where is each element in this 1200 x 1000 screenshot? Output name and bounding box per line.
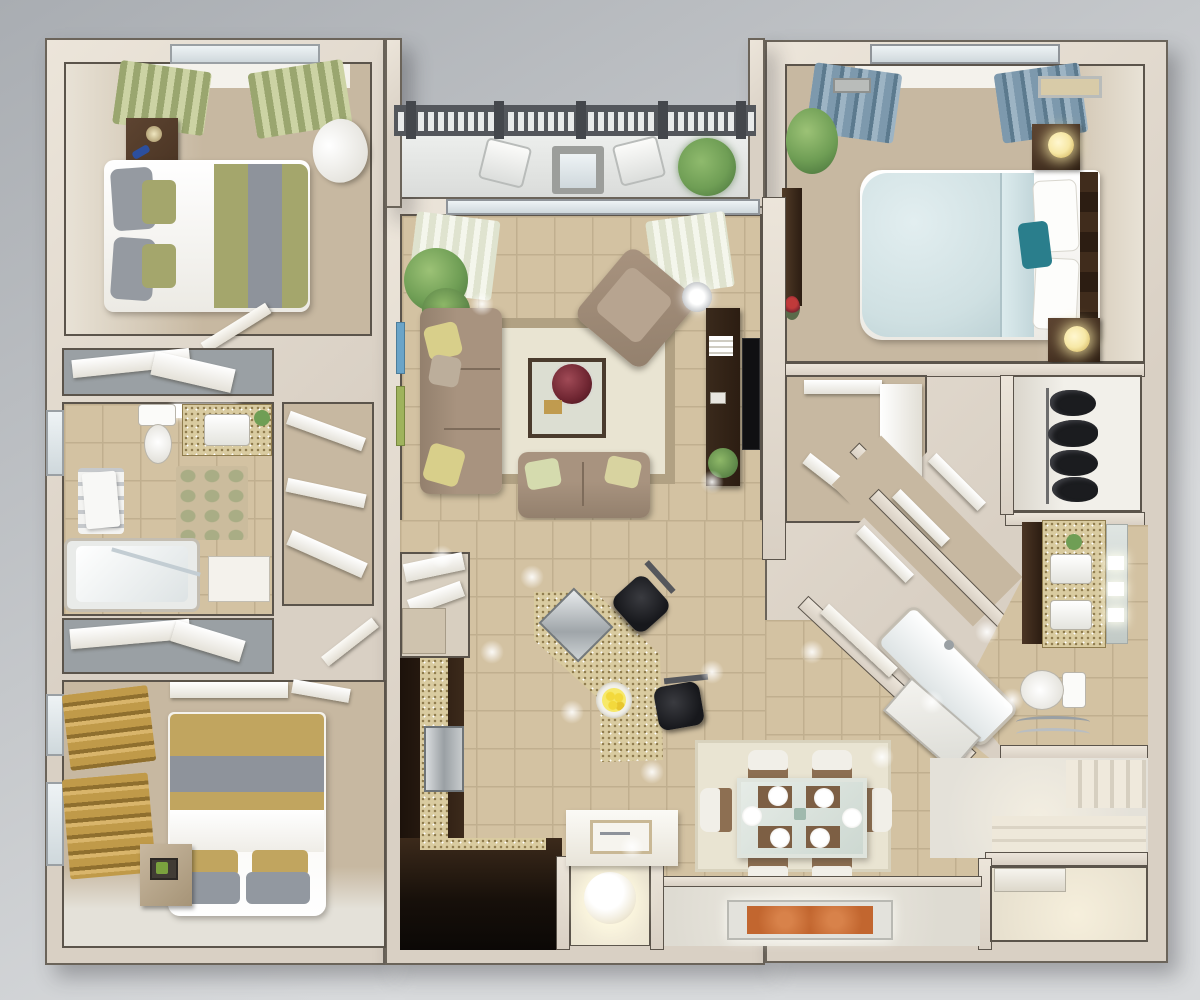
kitchen-counter-bottom-granite — [420, 838, 546, 850]
bath2-towel-rack — [1016, 728, 1090, 740]
pantry-appliance — [402, 608, 446, 654]
dinner-plate — [770, 828, 790, 848]
vanity-light — [1108, 608, 1124, 622]
dinner-plate — [842, 808, 862, 828]
light-sparkle — [700, 660, 724, 684]
closet-rod — [1046, 388, 1049, 504]
balcony-plant — [678, 138, 736, 196]
light-sparkle — [1000, 688, 1024, 712]
bath2-south-wall — [1000, 745, 1148, 759]
master-wall-art — [1038, 76, 1102, 98]
sofa-pillow-taupe — [428, 354, 463, 389]
balcony-table-top — [560, 154, 596, 188]
bath2-tub-faucet — [944, 640, 954, 650]
master-wall-frame — [833, 78, 871, 93]
foyer-paneled-doors — [1066, 760, 1146, 808]
bathroom1-sink — [204, 414, 250, 446]
bathroom1-plant — [254, 410, 270, 426]
dinner-plate — [768, 786, 788, 806]
entry-step-wall — [662, 876, 982, 887]
bath2-toilet-tank — [1062, 672, 1086, 708]
storage-north-wall — [985, 852, 1148, 866]
bedroom3-blanket-gray-band — [170, 756, 324, 792]
floor-plan-scene — [0, 0, 1200, 1000]
light-sparkle — [640, 760, 664, 784]
loveseat-pillow — [524, 457, 562, 490]
entry-rug-orange — [747, 906, 873, 934]
bedroom2-blanket-stripe — [248, 164, 282, 308]
light-sparkle — [700, 470, 724, 494]
vanity-light — [1108, 582, 1124, 596]
wall-art-green — [396, 386, 405, 446]
clothes-closet-west-wall — [1000, 375, 1014, 515]
bedroom3-blinds — [62, 685, 157, 771]
light-sparkle — [920, 690, 944, 714]
bedroom2-pillow-olive — [142, 244, 176, 288]
railing-post — [658, 101, 668, 139]
bathroom1-window — [46, 410, 64, 476]
light-sparkle — [975, 620, 999, 644]
light-sparkle — [470, 292, 494, 316]
nightstand-lamp-glow — [1064, 326, 1090, 352]
light-sparkle — [620, 835, 644, 859]
bath2-plant — [1066, 534, 1082, 550]
balcony-railing — [394, 105, 756, 136]
lamp-nook-wall-right — [650, 856, 664, 950]
railing-post — [406, 101, 416, 139]
built-in-appliance — [424, 726, 464, 792]
table-centerpiece — [794, 808, 806, 820]
bedroom3-shelf — [170, 682, 288, 698]
railing-post — [494, 101, 504, 139]
master-window — [870, 44, 1060, 64]
fruit-lemons — [602, 688, 626, 712]
bath2-sink — [1050, 600, 1092, 630]
hanging-garment — [1048, 420, 1098, 447]
bedroom3-window — [46, 694, 64, 756]
bedroom3-duvet-fold — [170, 810, 324, 852]
bar-stool — [653, 680, 706, 731]
light-sparkle — [480, 640, 504, 664]
console-print-marks — [600, 832, 630, 835]
walkin-shelf — [804, 380, 882, 394]
coffee-table-book — [544, 400, 562, 414]
tv-screen — [742, 338, 760, 450]
hanging-garment — [1050, 390, 1096, 416]
sphere-lamp — [584, 872, 636, 924]
bedroom2-pillow-olive — [142, 180, 176, 224]
dining-chair — [700, 788, 732, 832]
bathroom1-toilet-bowl — [144, 424, 172, 464]
foyer-panel-lines — [992, 816, 1146, 856]
dinner-plate — [814, 788, 834, 808]
bath2-towel-rack — [1016, 716, 1090, 728]
vanity-light — [1108, 556, 1124, 570]
light-sparkle — [430, 545, 454, 569]
bedroom3-blanket-khaki-lower — [170, 792, 324, 810]
bedroom3-window — [46, 782, 64, 866]
wall-art-blue — [396, 322, 405, 374]
dinner-plate — [742, 806, 762, 826]
bathroom1-cabinet — [208, 556, 270, 602]
bedroom2-window — [170, 44, 320, 64]
light-sparkle — [870, 745, 894, 769]
kitchen-counter-bottom — [400, 838, 562, 950]
living-master-wall — [762, 197, 786, 560]
dresser-flowers — [784, 296, 800, 320]
bath2-toilet-bowl — [1020, 670, 1064, 710]
bathroom1-toilet-tank — [138, 404, 176, 426]
living-sofa-cushion-line — [444, 428, 500, 430]
bedroom3-green-decor — [156, 862, 168, 874]
railing-post — [736, 101, 746, 139]
master-plant — [786, 108, 838, 174]
bath2-vanity-cabinet — [1022, 522, 1042, 644]
lamp-nook-wall-left — [556, 856, 570, 950]
hanging-garment — [1050, 450, 1098, 476]
master-headboard — [1080, 172, 1098, 340]
loveseat-cushion-line — [582, 462, 584, 506]
bath2-sink — [1050, 554, 1092, 584]
light-sparkle — [520, 565, 544, 589]
railing-post — [576, 101, 586, 139]
storage-cabinets — [994, 868, 1066, 892]
bathroom1-pebble-mat — [176, 466, 248, 540]
hanging-garment — [1052, 477, 1098, 502]
nightstand-lamp-glow — [1048, 132, 1074, 158]
decor-bowl-red — [552, 364, 592, 404]
bedroom3-pillow-gray — [246, 872, 310, 904]
light-sparkle — [560, 700, 584, 724]
console-books — [709, 336, 733, 356]
bathroom1-towel — [82, 471, 121, 530]
console-device — [710, 392, 726, 404]
bedroom2-table-lamp — [146, 126, 162, 142]
master-pillow-teal — [1017, 220, 1052, 269]
light-sparkle — [800, 640, 824, 664]
dinner-plate — [810, 828, 830, 848]
